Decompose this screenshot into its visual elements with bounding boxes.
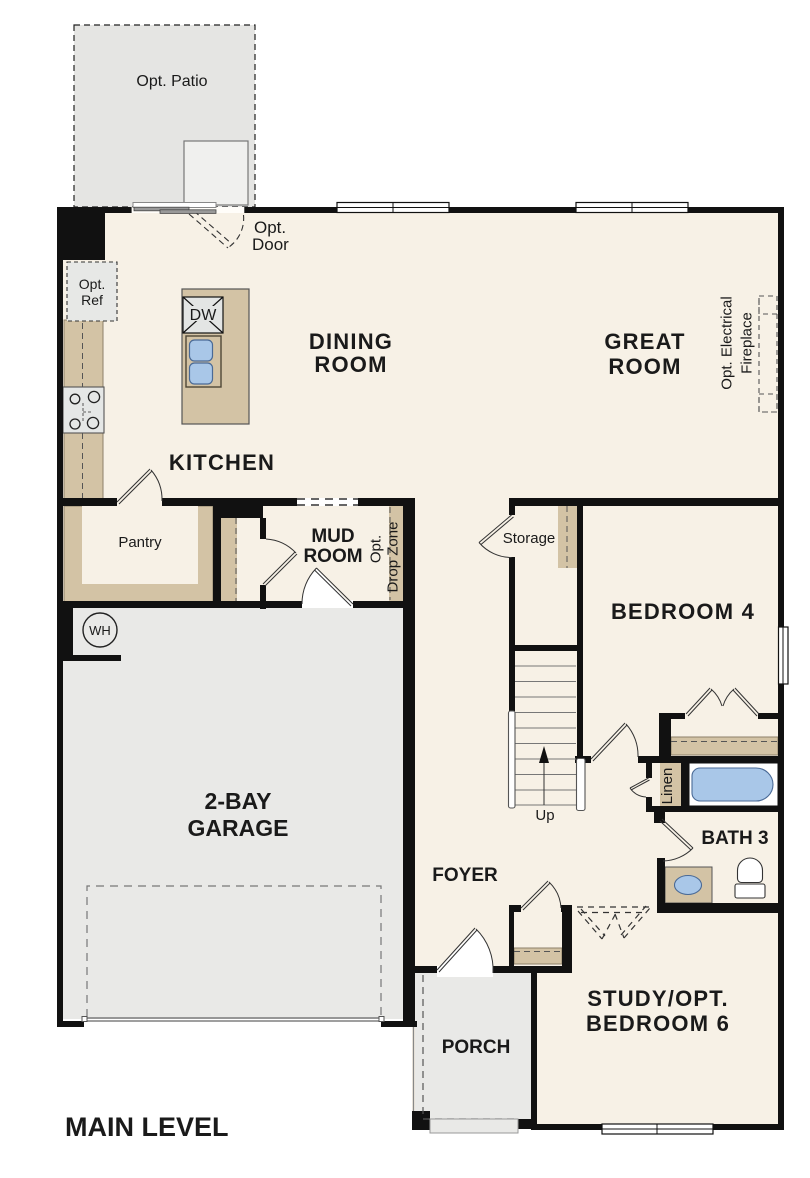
svg-text:Opt. Electrical: Opt. Electrical [719, 296, 736, 389]
svg-text:STUDY/OPT.: STUDY/OPT. [587, 986, 729, 1011]
svg-text:DINING: DINING [309, 329, 393, 354]
svg-text:Opt. Patio: Opt. Patio [136, 73, 207, 90]
svg-text:ROOM: ROOM [303, 546, 362, 567]
svg-text:ROOM: ROOM [314, 352, 387, 377]
svg-text:Opt.: Opt. [368, 535, 385, 563]
svg-text:Door: Door [252, 235, 289, 254]
svg-text:GARAGE: GARAGE [188, 815, 289, 841]
svg-text:FOYER: FOYER [432, 865, 498, 886]
svg-text:Opt.: Opt. [79, 276, 105, 292]
svg-text:Storage: Storage [503, 530, 556, 547]
svg-text:KITCHEN: KITCHEN [169, 450, 275, 475]
svg-text:Fireplace: Fireplace [739, 312, 756, 374]
svg-text:2-BAY: 2-BAY [205, 788, 272, 814]
svg-text:MAIN LEVEL: MAIN LEVEL [65, 1112, 229, 1142]
svg-text:BATH 3: BATH 3 [701, 828, 768, 849]
svg-text:Up: Up [535, 807, 554, 824]
svg-text:MUD: MUD [311, 526, 354, 547]
svg-text:BEDROOM 4: BEDROOM 4 [611, 599, 755, 624]
svg-text:DW: DW [190, 307, 218, 324]
svg-text:GREAT: GREAT [604, 329, 685, 354]
svg-text:BEDROOM 6: BEDROOM 6 [586, 1011, 730, 1036]
svg-text:PORCH: PORCH [442, 1037, 511, 1058]
svg-text:Ref: Ref [81, 292, 103, 308]
svg-text:WH: WH [89, 623, 111, 638]
svg-text:Drop Zone: Drop Zone [385, 522, 402, 593]
svg-text:Pantry: Pantry [118, 534, 162, 551]
svg-text:ROOM: ROOM [608, 354, 681, 379]
svg-text:Linen: Linen [659, 768, 676, 805]
